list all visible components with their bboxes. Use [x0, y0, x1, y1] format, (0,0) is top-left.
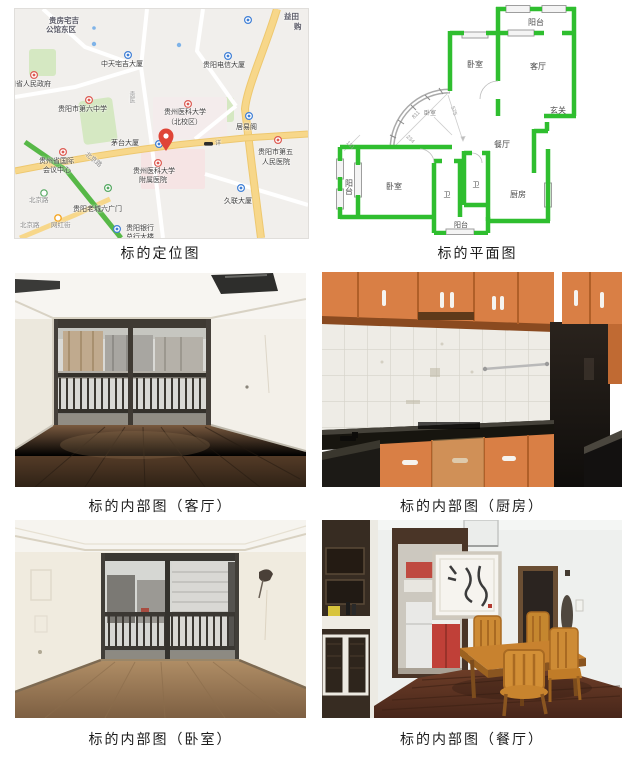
map-label: 贵房宅吉: [49, 17, 79, 25]
wall-picture: [434, 553, 500, 617]
street-icon: [55, 215, 61, 221]
room-label: 玄关: [550, 105, 566, 115]
dining-room-photo: [322, 520, 622, 718]
floorplan-curved-wall: [390, 88, 450, 149]
map-road-label: 北京路: [20, 222, 40, 230]
map-label: 贵阳市第六中学: [58, 106, 107, 114]
room-label: 卫: [473, 181, 480, 189]
map-label: 详: [215, 140, 221, 148]
bedroom-ceiling: [15, 520, 306, 552]
station-icon: [41, 190, 47, 196]
caption-bedroom: 标的内部图（卧室）: [15, 729, 306, 749]
floor-plan: 阳台 卧室 客厅 玄关 餐厅 阳台 卧室 卫 卫 厨房 阳台 卧室 811 57…: [330, 3, 625, 237]
dining-room-scene: [322, 520, 622, 718]
water-drop-icon: [92, 42, 96, 46]
caption-location-map: 标的定位图: [14, 243, 307, 263]
kitchen-scene: [322, 272, 622, 487]
caption-dining-room: 标的内部图（餐厅）: [322, 729, 622, 749]
location-map: 贵房宅吉 公馆东区 益田 购 中天宅吉大厦 贵阳电信大厦 州省人民政府 贵阳市第…: [14, 8, 309, 239]
map-label: 贵州医科大学: [164, 109, 206, 117]
room-label: 卧室: [467, 59, 483, 69]
dimension-label: 811: [411, 110, 421, 120]
map-label: 会议中心: [43, 167, 71, 175]
dimension-label: 234: [405, 134, 416, 145]
map-label: 贵州医科大学: [133, 168, 175, 176]
government-icon: [31, 72, 38, 79]
school-icon: [86, 97, 93, 104]
map-label: 州省人民政府: [14, 81, 51, 89]
road-badge-icon: [204, 142, 213, 146]
upper-cabinets: [322, 272, 554, 332]
room-label: 客厅: [530, 61, 546, 71]
room-label: 阳台: [345, 179, 354, 196]
map-label: 益田: [284, 13, 299, 21]
living-room-scene: [15, 273, 306, 487]
living-room-photo: [15, 273, 306, 487]
living-window: [53, 319, 211, 425]
map-label: 居易阁: [236, 124, 257, 132]
landmark-icon: [105, 185, 112, 192]
floorplan-walls: [340, 7, 576, 233]
map-label: 贵阳市第五: [258, 149, 293, 157]
water-drop-icon: [92, 26, 96, 30]
building-icon: [246, 113, 253, 120]
room-label: 餐厅: [494, 140, 510, 149]
room-label: 卧室: [386, 181, 402, 191]
room-label: 阳台: [454, 220, 468, 229]
bedroom-photo: [15, 520, 306, 718]
building-icon: [238, 185, 245, 192]
hospital-icon: [275, 137, 282, 144]
map-label: 人民医院: [262, 159, 290, 167]
map-label: 久联大厦: [224, 198, 252, 206]
caption-kitchen: 标的内部图（厨房）: [322, 496, 622, 516]
map-label: 公馆东区: [46, 26, 76, 34]
metro-icon: [245, 17, 252, 24]
kitchen-photo: [322, 272, 622, 487]
caption-living-room: 标的内部图（客厅）: [15, 496, 306, 516]
caption-floor-plan: 标的平面图: [330, 243, 625, 263]
water-drop-icon: [177, 43, 181, 47]
hospital-icon: [155, 160, 162, 167]
room-label: 卧室: [424, 109, 436, 117]
university-icon: [185, 101, 192, 108]
map-label: 购: [294, 23, 302, 31]
room-label: 阳台: [528, 17, 544, 27]
map-label: 附属医院: [139, 177, 167, 185]
map-label: 总行大楼: [126, 234, 154, 239]
map-label: （北校区）: [167, 119, 202, 127]
bedroom-window: [101, 553, 239, 660]
map-label: 茅台大厦: [111, 140, 139, 148]
ceiling-light: [464, 520, 498, 546]
conference-icon: [60, 149, 67, 156]
dimension-label: 575: [449, 106, 458, 117]
room-label: 卫: [444, 191, 451, 199]
map-road-label: 网红街: [51, 222, 71, 230]
floorplan-room-labels: 阳台 卧室 客厅 玄关 餐厅 阳台 卧室 卫 卫 厨房 阳台 卧室: [345, 17, 567, 229]
map-label: 贵阳电信大厦: [203, 62, 245, 70]
building-icon: [225, 53, 232, 60]
floorplan-graphics: 阳台 卧室 客厅 玄关 餐厅 阳台 卧室 卫 卫 厨房 阳台 卧室 811 57…: [330, 3, 625, 235]
metro-icon: [125, 52, 132, 59]
room-label: 厨房: [510, 189, 526, 199]
bedroom-scene: [15, 520, 306, 718]
map-road-label: 贵医: [127, 91, 135, 103]
map-label: 中天宅吉大厦: [101, 61, 143, 69]
map-road-label: 北京路: [29, 197, 49, 205]
living-ceiling: [15, 273, 306, 319]
floorplan-dimensions: 811 575 234 131: [345, 106, 458, 151]
report-page: 贵房宅吉 公馆东区 益田 购 中天宅吉大厦 贵阳电信大厦 州省人民政府 贵阳市第…: [0, 0, 634, 768]
bank-icon: [114, 226, 121, 233]
map-graphics: [15, 9, 308, 238]
map-label: 贵阳老城六广门: [73, 206, 122, 214]
map-label: 贵阳银行: [126, 225, 154, 233]
floorplan-dimension-lines: [344, 91, 465, 151]
map-label: 贵州省国际: [39, 158, 74, 166]
dining-cabinet: [322, 520, 378, 718]
